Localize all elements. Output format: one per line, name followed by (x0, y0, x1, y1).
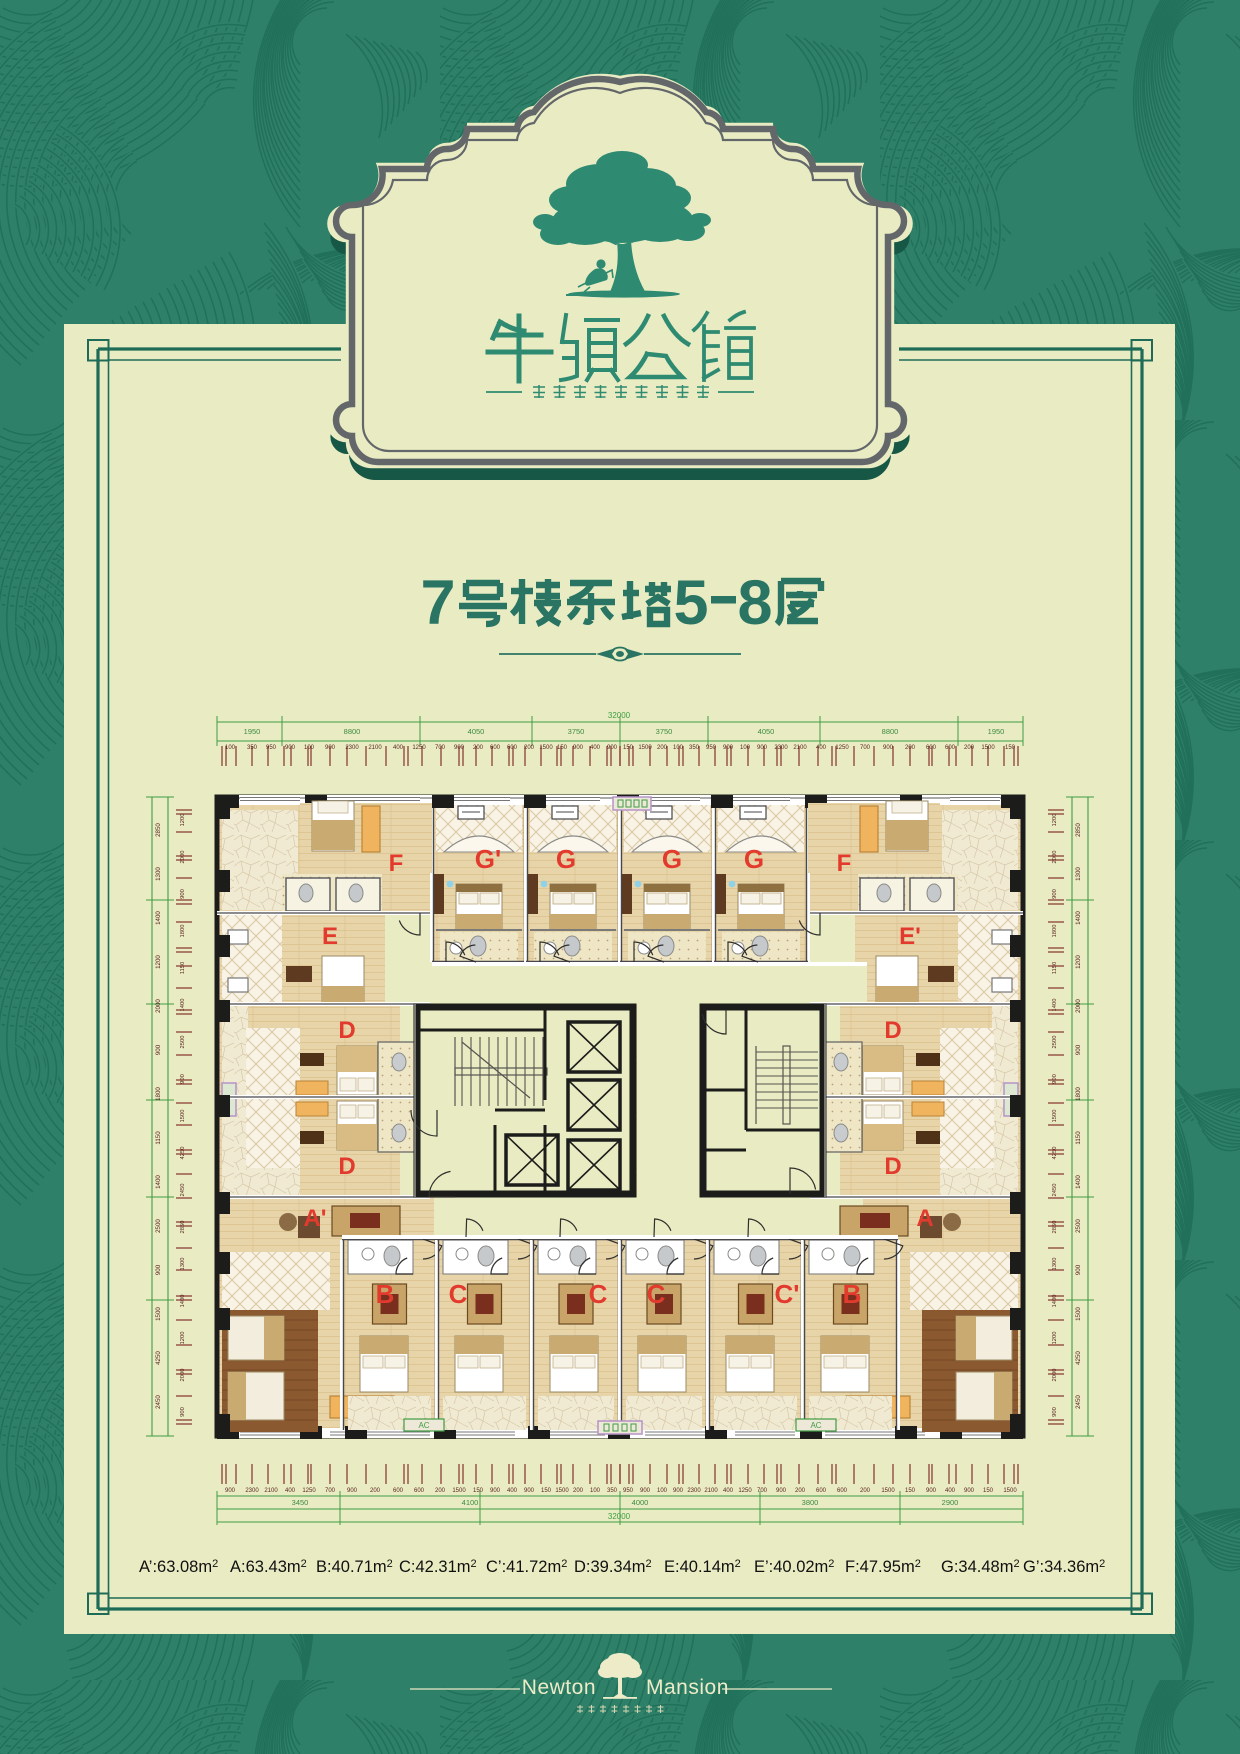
svg-text:2450: 2450 (155, 1395, 162, 1409)
svg-text:1500: 1500 (1052, 1110, 1058, 1123)
svg-text:950: 950 (706, 745, 717, 751)
svg-text:1300: 1300 (1075, 867, 1082, 881)
svg-text:150: 150 (983, 1488, 994, 1494)
svg-text:8800: 8800 (882, 727, 899, 736)
svg-text:G': G' (475, 844, 501, 874)
svg-text:A': A' (303, 1205, 326, 1232)
svg-text:2850: 2850 (1075, 823, 1082, 837)
svg-text:1500: 1500 (881, 1488, 895, 1494)
svg-text:200: 200 (964, 745, 975, 751)
svg-text:4050: 4050 (468, 727, 485, 736)
svg-text:1300: 1300 (155, 867, 162, 881)
svg-text:2500: 2500 (155, 1219, 162, 1233)
svg-text:1800: 1800 (155, 1087, 162, 1101)
svg-text:1500: 1500 (155, 1307, 162, 1321)
svg-text:350: 350 (689, 745, 700, 751)
svg-text:2100: 2100 (368, 745, 382, 751)
svg-text:2450: 2450 (180, 1184, 186, 1197)
svg-text:C’:41.72m2: C’:41.72m2 (486, 1558, 567, 1576)
svg-text:150: 150 (541, 1488, 552, 1494)
svg-text:900: 900 (454, 745, 465, 751)
svg-text:8800: 8800 (344, 727, 361, 736)
svg-text:1250: 1250 (302, 1488, 316, 1494)
svg-text:1200: 1200 (180, 1332, 186, 1345)
svg-text:900: 900 (285, 745, 296, 751)
svg-text:950: 950 (623, 1488, 634, 1494)
svg-text:1200: 1200 (155, 955, 162, 969)
svg-text:700: 700 (435, 745, 446, 751)
svg-text:1500: 1500 (555, 1488, 569, 1494)
svg-text:2300: 2300 (245, 1488, 259, 1494)
svg-text:1250: 1250 (412, 745, 426, 751)
svg-text:3800: 3800 (802, 1498, 819, 1507)
svg-text:3750: 3750 (568, 727, 585, 736)
svg-text:2000: 2000 (1052, 851, 1058, 864)
svg-text:200: 200 (905, 745, 916, 751)
svg-text:1150: 1150 (1052, 962, 1058, 974)
svg-text:1500: 1500 (539, 745, 553, 751)
svg-text:1200: 1200 (180, 814, 186, 827)
svg-text:1400: 1400 (1052, 999, 1058, 1012)
svg-text:5: 5 (673, 568, 708, 638)
svg-text:B:40.71m2: B:40.71m2 (316, 1558, 393, 1576)
svg-text:A: A (916, 1205, 933, 1232)
svg-text:4050: 4050 (758, 727, 775, 736)
svg-text:F: F (389, 850, 404, 877)
svg-text:900: 900 (1052, 1074, 1058, 1084)
svg-text:900: 900 (180, 1074, 186, 1084)
svg-text:1500: 1500 (1075, 1307, 1082, 1321)
svg-text:200: 200 (657, 745, 668, 751)
svg-text:200: 200 (370, 1488, 381, 1494)
svg-text:2000: 2000 (1052, 1369, 1058, 1382)
svg-text:1800: 1800 (1075, 1087, 1082, 1101)
svg-text:600: 600 (393, 1488, 404, 1494)
svg-text:700: 700 (757, 1488, 768, 1494)
svg-text:200: 200 (435, 1488, 446, 1494)
svg-text:1400: 1400 (180, 999, 186, 1012)
svg-text:900: 900 (225, 1488, 236, 1494)
svg-text:1200: 1200 (1052, 814, 1058, 827)
svg-text:600: 600 (414, 1488, 425, 1494)
svg-text:C: C (449, 1279, 468, 1309)
svg-text:400: 400 (816, 745, 827, 751)
svg-text:32000: 32000 (608, 711, 631, 720)
svg-text:4250: 4250 (1075, 1351, 1082, 1365)
svg-text:2450: 2450 (1075, 1395, 1082, 1409)
svg-text:D: D (884, 1153, 901, 1180)
svg-text:1950: 1950 (988, 727, 1005, 736)
svg-text:600: 600 (490, 745, 501, 751)
svg-text:600: 600 (507, 745, 518, 751)
svg-text:G’:34.36m2: G’:34.36m2 (1023, 1558, 1105, 1576)
svg-text:2850: 2850 (155, 823, 162, 837)
svg-text:200: 200 (860, 1488, 871, 1494)
svg-text:100: 100 (740, 745, 751, 751)
svg-text:2500: 2500 (1075, 1219, 1082, 1233)
svg-text:2000: 2000 (180, 1369, 186, 1382)
svg-text:350: 350 (607, 1488, 618, 1494)
svg-text:G: G (744, 844, 764, 874)
svg-text:Newton: Newton (522, 1676, 596, 1699)
svg-text:200: 200 (573, 1488, 584, 1494)
svg-text:2000: 2000 (155, 999, 162, 1013)
svg-text:900: 900 (325, 745, 336, 751)
svg-text:900: 900 (180, 889, 186, 899)
svg-text:100: 100 (590, 1488, 601, 1494)
svg-text:400: 400 (507, 1488, 518, 1494)
svg-text:400: 400 (945, 1488, 956, 1494)
svg-text:900: 900 (640, 1488, 651, 1494)
svg-text:1400: 1400 (1075, 1175, 1082, 1189)
svg-text:1400: 1400 (1075, 911, 1082, 925)
svg-text:G: G (556, 844, 576, 874)
svg-text:4250: 4250 (1052, 1147, 1058, 1160)
svg-text:8: 8 (737, 568, 772, 638)
svg-text:1500: 1500 (638, 745, 652, 751)
svg-text:900: 900 (155, 1044, 162, 1055)
svg-text:1500: 1500 (180, 1110, 186, 1123)
svg-text:E’:40.02m2: E’:40.02m2 (754, 1558, 834, 1576)
svg-text:C': C' (775, 1279, 800, 1309)
svg-text:700: 700 (860, 745, 871, 751)
svg-text:600: 600 (926, 745, 937, 751)
svg-text:1300: 1300 (180, 1258, 186, 1271)
svg-text:150: 150 (557, 745, 568, 751)
svg-text:1200: 1200 (1052, 1332, 1058, 1345)
svg-text:900: 900 (155, 1264, 162, 1275)
svg-text:E:40.14m2: E:40.14m2 (664, 1558, 741, 1576)
svg-text:1400: 1400 (1052, 1295, 1058, 1308)
svg-text:400: 400 (723, 1488, 734, 1494)
svg-text:G: G (662, 844, 682, 874)
svg-text:1300: 1300 (1052, 1258, 1058, 1271)
svg-text:400: 400 (393, 745, 404, 751)
svg-text:D: D (884, 1017, 901, 1044)
svg-text:3750: 3750 (656, 727, 673, 736)
svg-text:D: D (338, 1153, 355, 1180)
svg-text:2000: 2000 (180, 851, 186, 864)
svg-text:900: 900 (1052, 1407, 1058, 1417)
svg-text:900: 900 (757, 745, 768, 751)
svg-text:1950: 1950 (244, 727, 261, 736)
svg-text:1500: 1500 (452, 1488, 466, 1494)
svg-text:4100: 4100 (462, 1498, 479, 1507)
svg-text:2500: 2500 (180, 1036, 186, 1049)
svg-text:100: 100 (657, 1488, 668, 1494)
svg-text:200: 200 (524, 745, 535, 751)
svg-text:E: E (322, 923, 338, 950)
svg-text:E': E' (899, 923, 921, 950)
svg-text:1200: 1200 (1075, 955, 1082, 969)
svg-text:4250: 4250 (155, 1351, 162, 1365)
svg-text:2900: 2900 (942, 1498, 959, 1507)
svg-text:32000: 32000 (608, 1512, 631, 1521)
svg-text:900: 900 (883, 745, 894, 751)
svg-text:1500: 1500 (981, 745, 995, 751)
svg-text:950: 950 (266, 745, 277, 751)
svg-text:900: 900 (1075, 1264, 1082, 1275)
svg-text:7: 7 (420, 568, 455, 638)
svg-text:2850: 2850 (1052, 1221, 1058, 1234)
svg-text:600: 600 (837, 1488, 848, 1494)
svg-text:2300: 2300 (687, 1488, 701, 1494)
svg-text:2300: 2300 (774, 745, 788, 751)
svg-text:1400: 1400 (155, 1175, 162, 1189)
svg-text:B: B (376, 1279, 395, 1309)
svg-text:900: 900 (673, 1488, 684, 1494)
svg-text:1500: 1500 (1003, 1488, 1017, 1494)
svg-text:2100: 2100 (793, 745, 807, 751)
svg-text:D: D (338, 1017, 355, 1044)
svg-text:150: 150 (1005, 745, 1016, 751)
svg-text:600: 600 (945, 745, 956, 751)
svg-text:900: 900 (723, 745, 734, 751)
svg-text:4250: 4250 (180, 1147, 186, 1160)
svg-text:900: 900 (776, 1488, 787, 1494)
svg-text:900: 900 (964, 1488, 975, 1494)
svg-text:3450: 3450 (292, 1498, 309, 1507)
svg-text:2850: 2850 (180, 1221, 186, 1234)
svg-text:A’:63.08m2: A’:63.08m2 (139, 1558, 218, 1576)
svg-text:400: 400 (590, 745, 601, 751)
svg-text:F: F (837, 850, 852, 877)
svg-text:1150: 1150 (180, 962, 186, 974)
svg-text:C:42.31m2: C:42.31m2 (399, 1558, 477, 1576)
svg-text:900: 900 (180, 1407, 186, 1417)
svg-text:400: 400 (285, 1488, 296, 1494)
svg-text:600: 600 (816, 1488, 827, 1494)
svg-text:900: 900 (1075, 1044, 1082, 1055)
svg-text:900: 900 (926, 1488, 937, 1494)
svg-text:900: 900 (573, 745, 584, 751)
svg-text:350: 350 (247, 745, 258, 751)
svg-text:200: 200 (473, 745, 484, 751)
svg-text:100: 100 (225, 745, 236, 751)
svg-text:Mansion: Mansion (646, 1676, 729, 1699)
svg-text:900: 900 (347, 1488, 358, 1494)
svg-text:2000: 2000 (1075, 999, 1082, 1013)
svg-text:700: 700 (325, 1488, 336, 1494)
svg-text:100: 100 (304, 745, 315, 751)
svg-text:D:39.34m2: D:39.34m2 (574, 1558, 652, 1576)
svg-text:1400: 1400 (180, 1295, 186, 1308)
svg-text:2100: 2100 (704, 1488, 718, 1494)
svg-text:1800: 1800 (180, 925, 186, 938)
svg-text:100: 100 (673, 745, 684, 751)
svg-text:4000: 4000 (632, 1498, 649, 1507)
svg-text:1250: 1250 (738, 1488, 752, 1494)
svg-text:C: C (647, 1279, 666, 1309)
svg-text:150: 150 (623, 745, 634, 751)
svg-text:AC: AC (810, 1421, 821, 1430)
svg-text:A:63.43m2: A:63.43m2 (230, 1558, 307, 1576)
svg-text:1150: 1150 (155, 1131, 162, 1145)
svg-text:B: B (843, 1279, 862, 1309)
svg-text:900: 900 (524, 1488, 535, 1494)
svg-text:1800: 1800 (1052, 925, 1058, 938)
svg-text:AC: AC (418, 1421, 429, 1430)
svg-text:2450: 2450 (1052, 1184, 1058, 1197)
svg-text:2300: 2300 (345, 745, 359, 751)
svg-text:900: 900 (607, 745, 618, 751)
svg-text:G:34.48m2: G:34.48m2 (941, 1558, 1020, 1576)
svg-text:200: 200 (795, 1488, 806, 1494)
svg-text:C: C (589, 1279, 608, 1309)
svg-text:2500: 2500 (1052, 1036, 1058, 1049)
svg-text:150: 150 (905, 1488, 916, 1494)
svg-text:F:47.95m2: F:47.95m2 (845, 1558, 921, 1576)
svg-text:900: 900 (1052, 889, 1058, 899)
svg-text:150: 150 (473, 1488, 484, 1494)
svg-text:2100: 2100 (264, 1488, 278, 1494)
svg-text:1150: 1150 (1075, 1131, 1082, 1145)
svg-text:1400: 1400 (155, 911, 162, 925)
svg-text:1250: 1250 (835, 745, 849, 751)
svg-text:900: 900 (490, 1488, 501, 1494)
